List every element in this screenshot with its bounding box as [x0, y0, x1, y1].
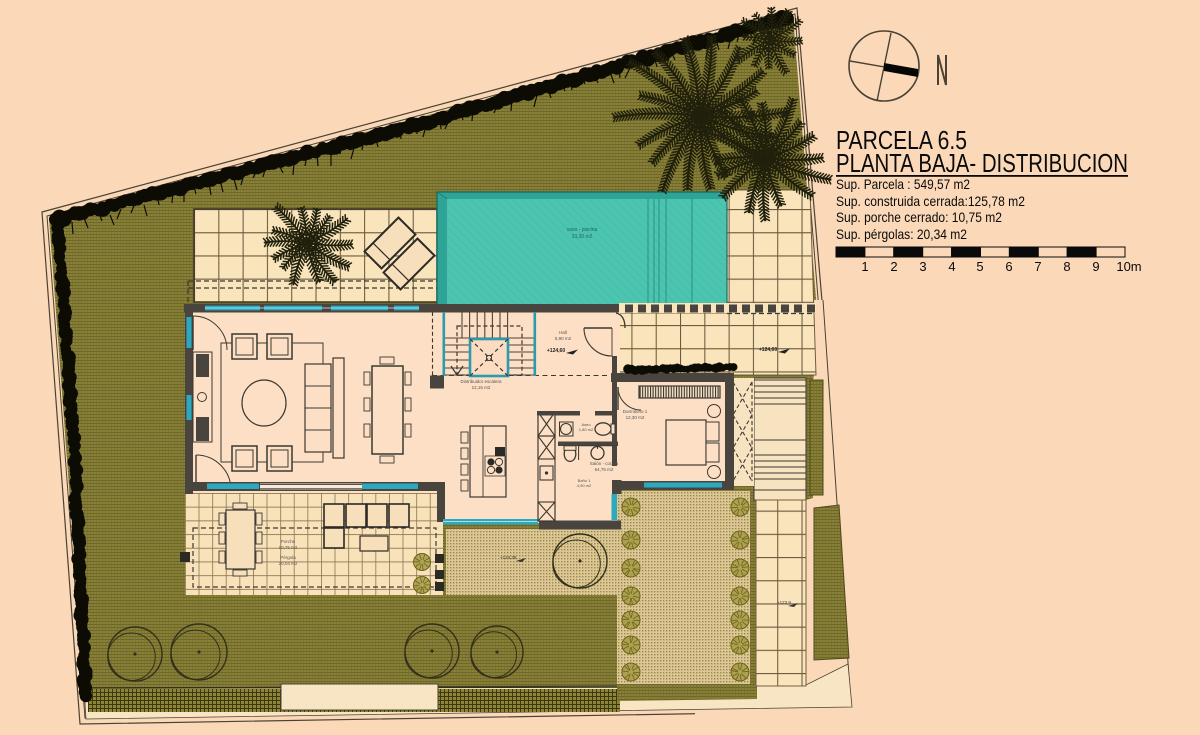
svg-text:1,80 m2: 1,80 m2 [579, 427, 594, 432]
svg-text:+124,35: +124,35 [500, 555, 517, 560]
svg-text:Hall: Hall [559, 330, 567, 335]
svg-text:7: 7 [1034, 259, 1041, 274]
svg-text:3: 3 [919, 259, 926, 274]
svg-text:33,30 m2: 33,30 m2 [572, 234, 593, 240]
svg-text:5: 5 [976, 259, 983, 274]
svg-text:6: 6 [1005, 259, 1012, 274]
svg-text:5,90 m2: 5,90 m2 [555, 336, 572, 341]
svg-text:8: 8 [1063, 259, 1070, 274]
svg-text:Distribuidor escalera: Distribuidor escalera [460, 379, 502, 384]
svg-text:2: 2 [890, 259, 897, 274]
svg-text:+124,60: +124,60 [759, 347, 777, 353]
svg-text:4: 4 [948, 259, 955, 274]
svg-text:vaso - piscina: vaso - piscina [567, 227, 598, 233]
svg-text:PLANTA BAJA- DISTRIBUCION: PLANTA BAJA- DISTRIBUCION [836, 148, 1128, 178]
svg-text:4,90 m2: 4,90 m2 [577, 483, 592, 488]
svg-text:Salón - cocina: Salón - cocina [590, 461, 619, 466]
svg-text:1: 1 [861, 259, 868, 274]
svg-text:Sup. construida cerrada:125,78: Sup. construida cerrada:125,78 m2 [836, 193, 1025, 209]
svg-text:+124,60: +124,60 [547, 348, 565, 354]
svg-text:12,15 m2: 12,15 m2 [472, 385, 491, 390]
svg-text:Sup. pérgolas: 20,34 m2: Sup. pérgolas: 20,34 m2 [836, 226, 967, 242]
svg-text:10,75 m2: 10,75 m2 [279, 545, 298, 550]
svg-text:64,75 m2: 64,75 m2 [595, 467, 614, 472]
svg-text:Sup. porche cerrado: 10,75 m2: Sup. porche cerrado: 10,75 m2 [836, 209, 1002, 225]
svg-text:Dormitorio 1: Dormitorio 1 [623, 409, 648, 414]
svg-text:Porche: Porche [281, 539, 296, 544]
svg-text:10m: 10m [1116, 259, 1141, 274]
svg-text:Sup. Parcela : 549,57 m2: Sup. Parcela : 549,57 m2 [836, 176, 970, 192]
svg-text:Pérgola: Pérgola [280, 555, 296, 560]
svg-text:12,30 m2: 12,30 m2 [626, 415, 645, 420]
svg-text:+123,9: +123,9 [777, 600, 791, 605]
svg-text:20,04 m2: 20,04 m2 [279, 561, 298, 566]
svg-text:9: 9 [1092, 259, 1099, 274]
